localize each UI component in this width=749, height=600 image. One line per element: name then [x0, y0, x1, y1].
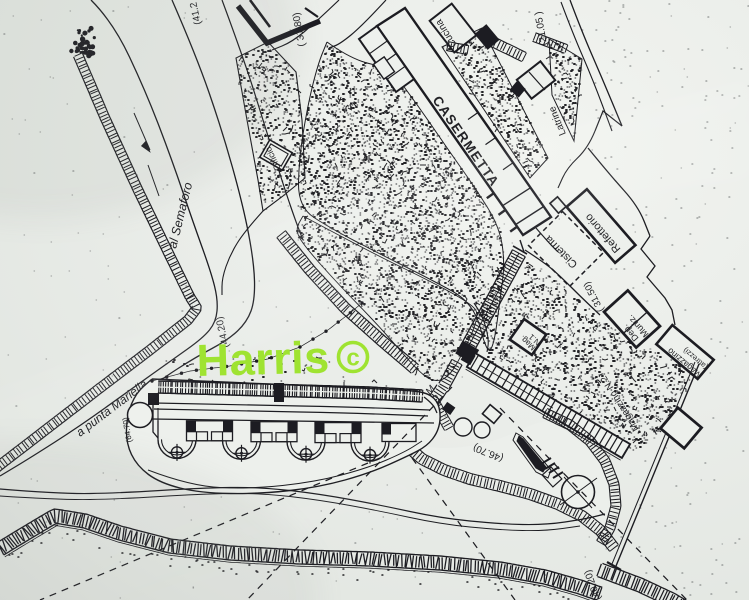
svg-text:c: c	[346, 345, 359, 372]
svg-text:Harris: Harris	[196, 332, 330, 386]
